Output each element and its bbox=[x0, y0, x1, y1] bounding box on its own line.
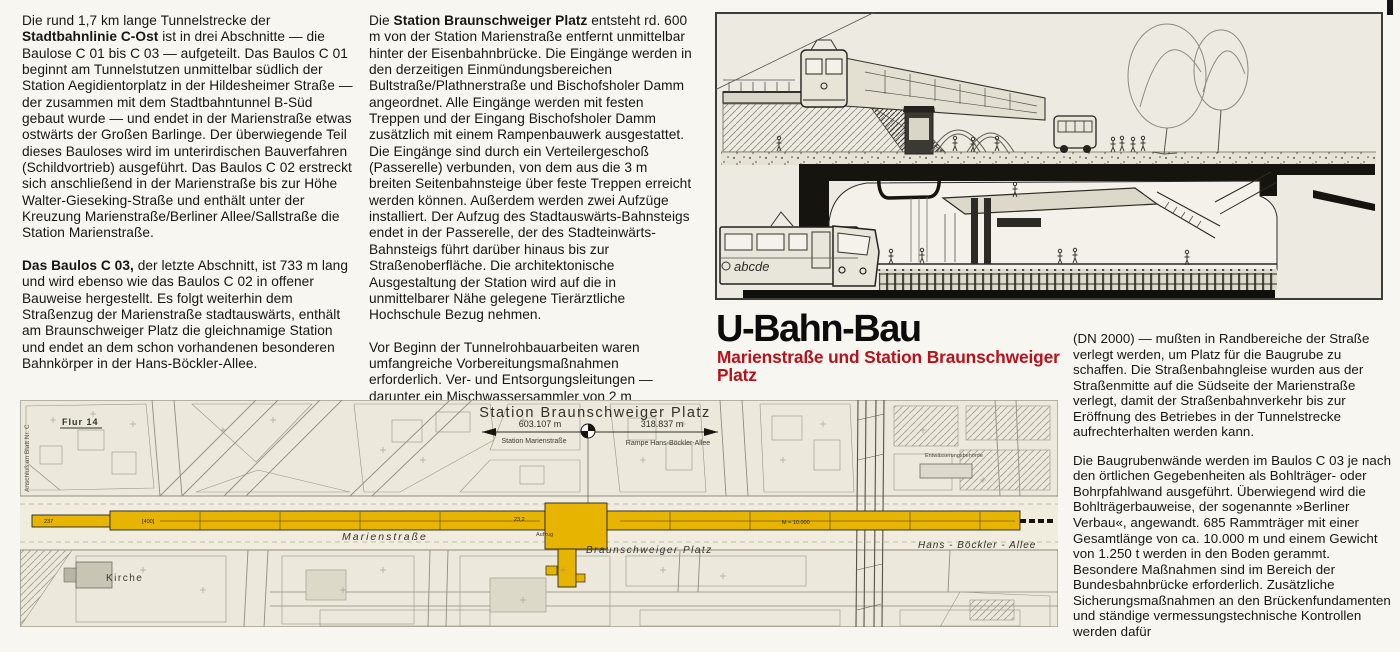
flur-label: Flur 14 bbox=[62, 417, 99, 427]
street-level bbox=[721, 152, 1376, 165]
bold-run: Stadtbahnlinie C-Ost bbox=[22, 29, 158, 44]
bold-run: Station Braunschweiger Platz bbox=[394, 13, 588, 28]
bus bbox=[1054, 116, 1096, 153]
paragraph: Das Baulos C 03, der letzte Abschnitt, i… bbox=[22, 258, 353, 372]
scale-label: M = 10.000 bbox=[782, 520, 810, 526]
paragraph: Die rund 1,7 km lange Tunnelstrecke der … bbox=[22, 13, 353, 242]
paragraph: (DN 2000) — mußten in Randbereiche der S… bbox=[1073, 331, 1398, 440]
site-plan-map: Kirche 603.107 m 318.837 m Station Marie… bbox=[20, 400, 1058, 627]
braunschweiger-platz-label: Braunschweiger Platz bbox=[586, 545, 713, 556]
bold-run: Das Baulos C 03, bbox=[22, 258, 134, 273]
hans-boeckler-label: Hans - Böckler - Allee bbox=[918, 540, 1036, 551]
band-mark: 23,2 bbox=[514, 517, 525, 523]
paragraph: Die Baugrubenwände werden im Baulos C 03… bbox=[1073, 453, 1398, 640]
kirche-label: Kirche bbox=[106, 573, 143, 584]
kiosk bbox=[903, 106, 935, 154]
paragraph-text: ist in drei Abschnitte — die Baulose C 0… bbox=[22, 29, 353, 240]
station-cross-section-illustration: abcde bbox=[715, 12, 1383, 300]
behoerde-label: Entwässerungsbehörde bbox=[925, 453, 983, 459]
paragraph-text: Die rund 1,7 km lange Tunnelstrecke der bbox=[22, 13, 270, 28]
map-title: Station Braunschweiger Platz bbox=[479, 405, 710, 421]
dim-right-label: Rampe Hans-Böckler-Allee bbox=[626, 440, 711, 447]
article-column-1: Die rund 1,7 km lange Tunnelstrecke der … bbox=[22, 13, 353, 388]
flur-label-group: Flur 14 bbox=[60, 417, 102, 428]
title-block: U-Bahn-Bau Marienstraße und Station Brau… bbox=[716, 311, 1096, 384]
paragraph-text: Die bbox=[369, 13, 394, 28]
paragraph: Die Station Braunschweiger Platz entsteh… bbox=[369, 13, 693, 324]
paragraph-text: der letzte Abschnitt, ist 733 m lang und… bbox=[22, 258, 348, 371]
train-letters: abcde bbox=[734, 259, 769, 274]
page-subtitle: Marienstraße und Station Braunschweiger … bbox=[717, 348, 1096, 384]
paragraph-text: entsteht rd. 600 m von der Station Marie… bbox=[369, 13, 692, 322]
page-title: U-Bahn-Bau bbox=[716, 311, 1096, 347]
article-column-3: (DN 2000) — mußten in Randbereiche der S… bbox=[1073, 331, 1398, 652]
map-edge-label: Anschluß an Blatt Nr. C bbox=[24, 424, 31, 492]
band-mark: 237 bbox=[44, 519, 53, 525]
article-column-2: Die Station Braunschweiger Platz entsteh… bbox=[369, 13, 693, 437]
band-mark: [400] bbox=[142, 519, 155, 525]
aufzug-label: Aufzug bbox=[536, 532, 553, 538]
dim-left-label: Station Marienstraße bbox=[502, 438, 567, 445]
marienstrasse-label: Marienstraße bbox=[342, 531, 428, 543]
page-corner-mark bbox=[1387, 0, 1393, 15]
